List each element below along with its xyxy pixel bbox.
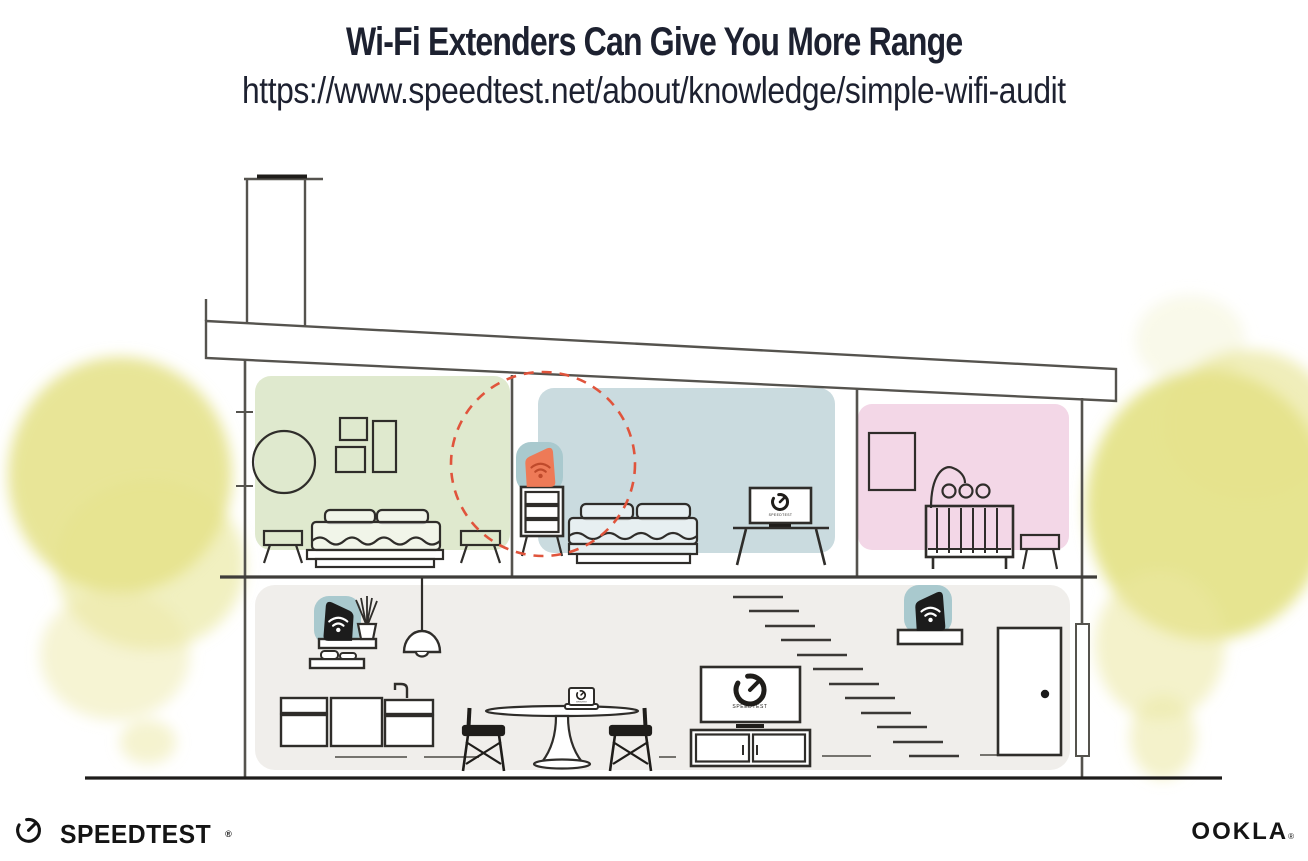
media-console [691, 730, 810, 766]
bed [569, 504, 697, 563]
jar [321, 651, 338, 659]
speedtest-gauge-icon [14, 814, 54, 854]
tv-screen-label: SPEEDTEST [732, 704, 767, 710]
infographic-canvas: Wi-Fi Extenders Can Give You More Range … [0, 0, 1308, 861]
registered-mark: ® [1288, 832, 1294, 841]
right-bush [1086, 295, 1308, 779]
laptop: SPEEDTEST [565, 688, 598, 709]
jar [340, 653, 356, 659]
laptop-screen-label: SPEEDTEST [576, 702, 588, 704]
tv-screen-label: SPEEDTEST [769, 513, 793, 517]
downspout [1076, 624, 1089, 756]
table-base [534, 760, 590, 769]
speedtest-wordmark: SPEEDTEST [60, 819, 211, 850]
registered-mark: ® [225, 829, 232, 839]
shelf [898, 630, 962, 644]
door-knob [1041, 690, 1049, 698]
left-bush [8, 357, 245, 764]
dining-table [486, 706, 638, 716]
shelf [310, 659, 364, 668]
ookla-wordmark: OOKLA [1191, 818, 1288, 846]
ookla-logo: OOKLA ® [1191, 818, 1294, 846]
bed [307, 510, 443, 567]
chimney [244, 177, 323, 328]
house-illustration: SPEEDTEST [0, 0, 1308, 861]
living-room-tv: SPEEDTEST [701, 667, 800, 728]
front-door [998, 628, 1061, 755]
speedtest-logo: SPEEDTEST ® [14, 814, 232, 854]
